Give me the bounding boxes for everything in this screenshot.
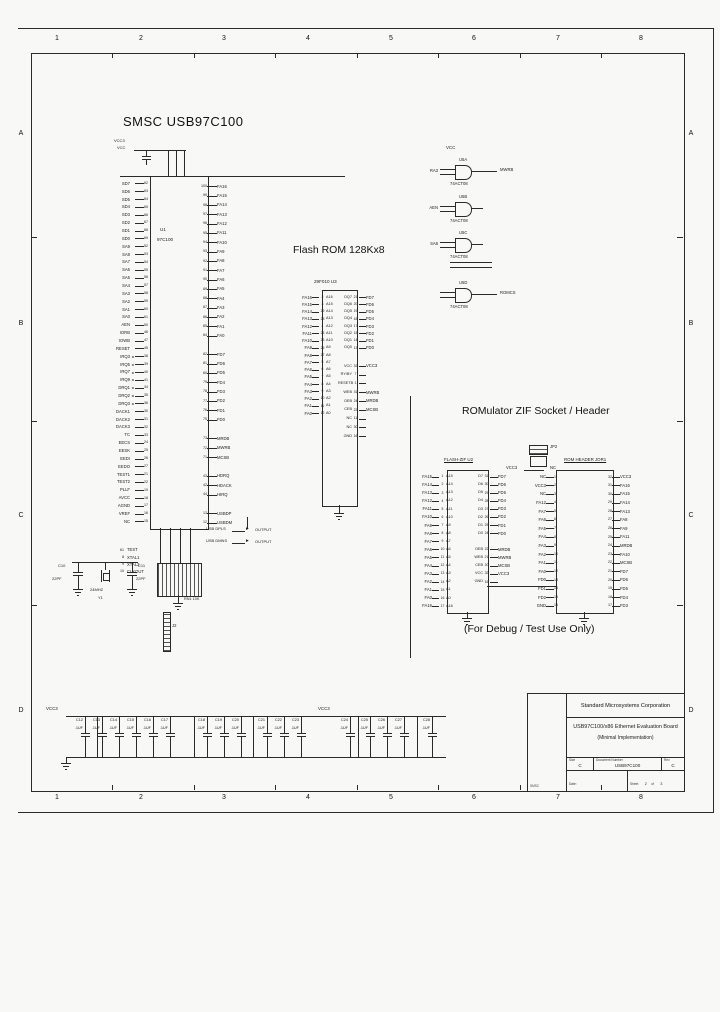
pin-label: 29	[483, 492, 490, 495]
pin-label: FD6	[498, 483, 520, 487]
pin-stub	[359, 312, 366, 313]
pin-row: TEST222	[100, 479, 152, 487]
pin-label: MRDB	[217, 437, 257, 441]
ground-icon	[127, 589, 137, 590]
pin-stub	[207, 298, 217, 299]
pin-label: 14	[554, 587, 563, 591]
pin-label: 25	[483, 524, 490, 527]
pin-label: 88	[199, 297, 207, 301]
cap-ref: C28	[419, 719, 430, 723]
pin-label: FD3	[620, 604, 648, 608]
pin-row: 81FD6	[199, 360, 259, 369]
pin-stub	[207, 196, 217, 197]
pin-label: 18	[352, 318, 359, 321]
pin-row: 73MRDB	[199, 434, 259, 443]
pin-row: FD114	[520, 585, 563, 594]
pin-row: DQ418FD4	[338, 316, 386, 323]
cap-value: .1UF	[270, 727, 282, 731]
pin-stub	[432, 557, 439, 558]
pin-row: FA66A6	[292, 367, 340, 374]
cap-value: .1UF	[253, 727, 265, 731]
pin-row: FA124A12	[292, 323, 340, 330]
pin-row: IRQ3◂38	[100, 353, 152, 361]
pin-label: MWRB	[498, 556, 520, 560]
ground-icon	[466, 624, 468, 625]
pin-label: FA6	[217, 278, 257, 282]
pin-stub	[432, 509, 439, 510]
pin-row: 28FA13	[603, 507, 648, 516]
pin-label: FD7	[366, 296, 386, 300]
pin-stub	[207, 420, 217, 421]
pin-label: 33	[144, 434, 152, 438]
pin-label: DQ2	[338, 332, 352, 336]
pin-label: 96	[199, 222, 207, 226]
pin-stub	[135, 498, 144, 499]
cap-ref: C24	[337, 719, 348, 723]
pin-stub	[207, 186, 217, 187]
pin-stub	[135, 482, 144, 483]
pin-label: FA8	[292, 354, 312, 358]
pin-label: FA2	[217, 315, 257, 319]
pin-label: 28	[483, 500, 490, 503]
pin-label: SA8	[100, 253, 130, 257]
cap-lead	[267, 716, 268, 733]
pin-stub	[135, 435, 144, 436]
pin-stub	[135, 427, 144, 428]
pin-stub	[207, 289, 217, 290]
pin-row: 98FA14	[199, 201, 259, 210]
pin-stub	[612, 563, 620, 564]
pin-label: NC	[338, 417, 352, 421]
pin-stub	[312, 370, 319, 371]
ground-icon	[77, 595, 79, 596]
pin-label: SA5	[100, 276, 130, 280]
pin-stub	[135, 254, 144, 255]
pin-row: FA151A15	[412, 473, 459, 481]
pin-label: 4	[319, 325, 326, 328]
ground-icon	[177, 609, 179, 610]
cap-lead	[432, 737, 433, 757]
wire	[134, 150, 186, 151]
pin-label: FA9	[217, 250, 257, 254]
pin-row: SA754	[100, 259, 152, 267]
pin-row: FA313A3	[412, 570, 459, 578]
pin-row: FA124	[520, 499, 563, 508]
wire	[120, 176, 150, 177]
pin-row: 24MRDB	[603, 542, 648, 551]
wire	[450, 267, 492, 268]
pin-row: FA57A5	[292, 374, 340, 381]
pin-label: FD4	[498, 499, 520, 503]
cap-plate	[132, 733, 141, 734]
cap-value: .1UF	[156, 727, 168, 731]
pin-label: FA1	[217, 325, 257, 329]
pin-label: 6	[439, 516, 446, 519]
ground-icon	[338, 519, 340, 520]
pin-label: DQ5	[338, 310, 352, 314]
pin-stub	[207, 410, 217, 411]
cap-plate	[73, 572, 83, 573]
pin-stub	[490, 533, 498, 534]
pin-label: 32	[603, 476, 612, 480]
cap-plate	[263, 733, 272, 734]
pin-stub	[546, 511, 554, 512]
pin-stub	[135, 325, 144, 326]
pin-row: RESET45	[100, 345, 152, 353]
pin-label: FD4	[620, 596, 648, 600]
frame-tick	[520, 785, 521, 790]
pin-label: FA7	[520, 510, 546, 514]
pin-row: FA48A4	[292, 381, 340, 388]
pin-row: 8XTAL1	[116, 554, 160, 561]
pin-label: D4	[473, 499, 483, 503]
cap-value: .1UF	[227, 727, 239, 731]
pin-row: 20FD6	[603, 576, 648, 585]
pin-stub	[207, 308, 217, 309]
pin-label: FA5	[292, 375, 312, 379]
pin-stub	[135, 490, 144, 491]
pin-stub	[135, 293, 144, 294]
pin-stub	[432, 477, 439, 478]
pin-row: WEB31MWRB	[338, 388, 386, 397]
gate-refdes: U5A	[459, 158, 467, 162]
pin-label: FA2	[412, 580, 432, 584]
pin-row: VREF16	[100, 510, 152, 518]
pin-stub	[546, 477, 554, 478]
pin-label: 27	[603, 518, 612, 522]
pin-stub	[312, 362, 319, 363]
pin-label: FA11	[292, 332, 312, 336]
pin-label: 22	[603, 561, 612, 565]
pin-label: 26	[144, 457, 152, 461]
pin-label: 3	[439, 492, 446, 495]
pin-label: 42	[199, 484, 207, 488]
ground-icon	[334, 513, 344, 514]
pin-label: 41	[144, 379, 152, 383]
pin-label: A9	[446, 524, 458, 528]
pin-row: SA160	[100, 306, 152, 314]
frame-col-label: 8	[634, 794, 648, 801]
pin-stub	[359, 341, 366, 342]
pin-stub	[546, 589, 554, 590]
frame-row-label: A	[684, 130, 698, 137]
pin-row: 96FA12	[199, 219, 259, 228]
pin-label: FA12	[412, 499, 432, 503]
pin-row: 43HDRQ	[199, 472, 259, 481]
pin-label: 20	[352, 303, 359, 306]
pin-stub	[612, 503, 620, 504]
pin-label: 24	[144, 441, 152, 445]
frame-tick	[112, 53, 113, 58]
pin-label: D3	[473, 508, 483, 512]
pin-row: D428FD4	[473, 497, 523, 505]
pin-label: 18	[603, 596, 612, 600]
frame-tick	[275, 53, 276, 58]
u2-left-pins: FA151A15FA142A14FA133A13FA124A12FA115A11…	[412, 473, 459, 611]
frame-row-label: B	[684, 320, 698, 327]
pin-label: NC	[520, 492, 546, 496]
pin-label: 21	[483, 556, 490, 559]
pin-row: 92FA8	[199, 257, 259, 266]
wire	[178, 595, 179, 603]
pin-row: D125FD1	[473, 522, 523, 530]
u1-left-pins: SD762SD663SD564SD465SD366SD267SD168SD069…	[100, 180, 152, 526]
pin-stub	[207, 476, 217, 477]
pin-label: A1	[446, 588, 458, 592]
pin-stub	[490, 485, 498, 486]
pin-label: 3	[554, 493, 563, 497]
pin-stub	[312, 304, 319, 305]
pin-stub	[135, 403, 144, 404]
pin-label: 44	[199, 493, 207, 497]
pin-label: 13	[554, 579, 563, 583]
pin-label: VREF	[100, 512, 130, 516]
cap-plate	[428, 733, 437, 734]
pin-row: 99FA15	[199, 191, 259, 200]
pin-row: OEB22MRDB	[473, 546, 523, 554]
frame-tick	[357, 53, 358, 58]
pin-stub	[546, 554, 554, 555]
pin-label: EECS	[100, 441, 130, 445]
cap-plate	[149, 733, 158, 734]
pin-label: 22	[352, 409, 359, 412]
pin-row: FA75A7	[292, 359, 340, 366]
pin-label: 76	[199, 409, 207, 413]
pin-stub	[135, 333, 144, 334]
pin-label: 2	[439, 483, 446, 486]
pin-row: D731FD7	[473, 473, 523, 481]
pin-stub	[546, 563, 554, 564]
pin-row: FA97A9	[412, 522, 459, 530]
pin-stub	[135, 278, 144, 279]
wire	[232, 543, 245, 544]
pin-label: 12	[319, 412, 326, 415]
wire	[440, 292, 455, 293]
pin-label: 9	[116, 563, 124, 567]
pin-label: FD5	[620, 587, 648, 591]
pin-stub	[135, 286, 144, 287]
cap-plate	[220, 733, 229, 734]
pin-label: FD1	[520, 587, 546, 591]
pin-stub	[135, 459, 144, 460]
pin-label: 43	[199, 475, 207, 479]
cap-lead	[119, 716, 120, 733]
pin-stub	[432, 598, 439, 599]
pin-label: 63	[144, 190, 152, 194]
pin-label: 38	[144, 355, 152, 359]
pin-label: FD1	[366, 339, 386, 343]
pin-stub	[546, 485, 554, 486]
cap-lead	[102, 737, 103, 757]
pin-label: USBDP	[217, 512, 257, 516]
pin-label: 39	[144, 363, 152, 367]
pin-stub	[612, 511, 620, 512]
pin-label: A6	[446, 548, 458, 552]
pin-label: FA7	[292, 361, 312, 365]
pin-row: SD069	[100, 235, 152, 243]
pin-label: SA7	[100, 260, 130, 264]
cap-lead	[404, 737, 405, 757]
pin-label: EEDO	[100, 465, 130, 469]
pin-label: MRDB	[498, 548, 520, 552]
pin-row: PLLF19	[100, 487, 152, 495]
pin-label: A3	[446, 572, 458, 576]
cap-lead	[224, 737, 225, 757]
pin-label: SD7	[100, 182, 130, 186]
pin-stub	[135, 506, 144, 507]
pin-row: EEDO27	[100, 463, 152, 471]
pin-row	[199, 341, 259, 350]
pin-label: 14	[352, 339, 359, 342]
pin-row: FA1023A10	[292, 338, 340, 345]
pin-label: A13	[446, 491, 458, 495]
pin-label: TEST	[127, 548, 157, 552]
wire	[440, 174, 455, 175]
pin-row: FA1429A14	[292, 309, 340, 316]
pin-stub	[612, 546, 620, 547]
pin-stub	[207, 224, 217, 225]
cap-lead	[119, 737, 120, 757]
ground-icon	[75, 592, 81, 593]
cap-lead	[153, 737, 154, 757]
crystal-plate	[101, 570, 102, 582]
pin-label: FA8	[412, 532, 432, 536]
vcc-rail	[66, 716, 446, 717]
ground-icon	[129, 592, 135, 593]
pin-label: FA16	[412, 604, 432, 608]
ground-icon	[583, 624, 585, 625]
jp2-box	[530, 456, 547, 467]
pin-label: 60	[144, 308, 152, 312]
pin-row: DQ013FD0	[338, 345, 386, 352]
pin-stub	[432, 606, 439, 607]
pin-row: FA210	[520, 550, 563, 559]
frame-tick	[677, 237, 683, 238]
pin-row	[199, 462, 259, 471]
cap-ref: C25	[357, 719, 368, 723]
cap-plate	[346, 733, 355, 734]
pin-row: DRQ1◂34	[100, 384, 152, 392]
cap-lead	[153, 716, 154, 733]
pin-row: WEB21MWRB	[473, 554, 523, 562]
pin-label: RY/BY	[338, 373, 352, 377]
pin-stub	[207, 382, 217, 383]
wire	[440, 169, 455, 170]
pin-row: FA79A7	[412, 538, 459, 546]
pin-label: FD7	[498, 475, 520, 479]
pin-label: 95	[199, 232, 207, 236]
pin-label: 31	[603, 484, 612, 488]
cap-lead	[241, 737, 242, 757]
pin-label: 30	[352, 426, 359, 429]
pin-row: 78FD3	[199, 388, 259, 397]
pin-row: 94FA10	[199, 238, 259, 247]
pin-row: FA75	[520, 507, 563, 516]
pin-row: SD465	[100, 204, 152, 212]
pin-label: A8	[326, 354, 340, 358]
pin-stub	[135, 183, 144, 184]
cap-lead	[284, 737, 285, 757]
gate-part-number: 74ACT08	[450, 182, 468, 186]
cap-ref: C22	[271, 719, 282, 723]
cap-value: .1UF	[390, 727, 402, 731]
pin-label: 68	[144, 229, 152, 233]
pin-label: A10	[446, 516, 458, 520]
pin-label: 16	[352, 435, 359, 438]
pin-label: FA12	[520, 501, 546, 505]
wire	[339, 505, 340, 513]
pin-label: DQ1	[338, 339, 352, 343]
pin-stub	[612, 528, 620, 529]
pin-label: 17	[603, 604, 612, 608]
pin-label: FA5	[412, 556, 432, 560]
pin-label: FA5	[520, 527, 546, 531]
pin-row: 89FA5	[199, 285, 259, 294]
pin-label: IRQ5	[100, 363, 130, 367]
pin-label: 25	[319, 332, 326, 335]
pin-label: 15	[554, 596, 563, 600]
cap-ref: C20	[228, 719, 239, 723]
pin-row: DQ317FD3	[338, 323, 386, 330]
pin-label: 52	[144, 245, 152, 249]
wire	[440, 206, 455, 207]
usb-output-label: OUTPUT	[255, 540, 271, 544]
cap-lead	[387, 716, 388, 733]
pin-label: 7	[319, 376, 326, 379]
pin-stub	[612, 597, 620, 598]
frame-row-label: B	[14, 320, 28, 327]
pin-label: FA4	[217, 297, 257, 301]
pin-label: FD2	[366, 332, 386, 336]
pin-stub	[135, 364, 144, 365]
pin-label: 11	[319, 405, 326, 408]
pin-label: 11	[554, 561, 563, 565]
pin-label: DACK2	[100, 418, 130, 422]
pin-row: CEB22MCSB	[338, 406, 386, 415]
pin-label: 21	[352, 296, 359, 299]
cap-lead	[85, 737, 86, 757]
pin-row: NC11	[338, 415, 386, 424]
pin-label: FA10	[217, 241, 257, 245]
pin-label: FA3	[520, 544, 546, 548]
pin-row: OEB24MRDB	[338, 397, 386, 406]
pin-stub	[135, 411, 144, 412]
pin-row: SA358	[100, 290, 152, 298]
pin-label: NC	[520, 475, 546, 479]
pin-label: 4	[554, 501, 563, 505]
cap-value: .1UF	[105, 727, 117, 731]
cap-plate	[203, 733, 212, 734]
pin-row: 30FA15	[603, 490, 648, 499]
pin-label: FD6	[620, 578, 648, 582]
pin-stub	[312, 399, 319, 400]
pin-label: FA0	[292, 412, 312, 416]
pin-stub	[490, 509, 498, 510]
pin-row: FA214A2	[412, 578, 459, 586]
pin-label: FA14	[412, 483, 432, 487]
pin-row: 23FA10	[603, 550, 648, 559]
cap-lead	[132, 575, 133, 589]
cap-value: .1UF	[193, 727, 205, 731]
pin-label: NC	[338, 426, 352, 430]
pin-row: 77FD2	[199, 397, 259, 406]
pin-stub	[546, 503, 554, 504]
pin-row: DQ620FD6	[338, 301, 386, 308]
pin-label: SA6	[100, 268, 130, 272]
pin-label: 6	[319, 368, 326, 371]
pin-row: D024FD0	[473, 530, 523, 538]
pin-stub	[490, 517, 498, 518]
